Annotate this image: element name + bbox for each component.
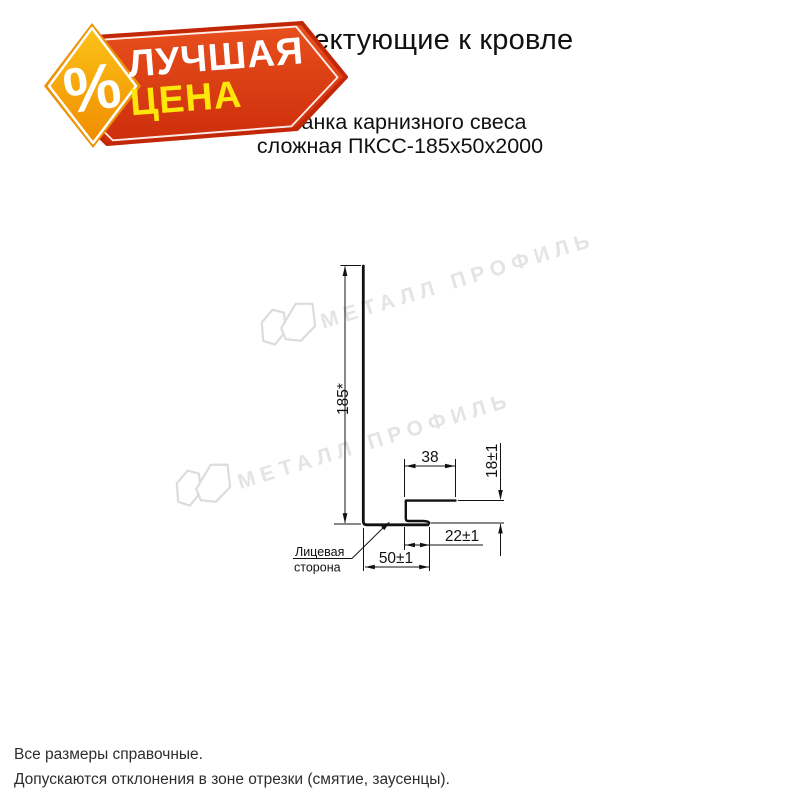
dim-label-185: 185* [335,383,352,415]
watermark-text: МЕТАЛЛ ПРОФИЛЬ [235,388,515,494]
footer-note-line2: Допускаются отклонения в зоне отрезки (с… [14,768,450,793]
dim-label-38: 38 [421,449,438,466]
footer-note-line1: Все размеры справочные. [14,743,450,768]
badge-word-bottom: ЦЕНА [129,74,244,125]
dim-label-50: 50±1 [379,550,413,567]
face-label-line1: Лицевая [295,545,344,559]
face-label-line2: сторона [294,561,341,575]
dimension-38: 38 [405,449,456,497]
watermark-text: МЕТАЛЛ ПРОФИЛЬ [318,228,598,334]
footer-notes: Все размеры справочные. Допускаются откл… [14,743,450,792]
dim-label-18: 18±1 [484,444,501,478]
dimension-50: 50±1 [364,528,430,571]
metal-profil-logo-icon [255,298,322,351]
best-price-badge: % ЛУЧШАЯ ЦЕНА [15,15,360,155]
metal-profil-logo-icon [170,459,237,512]
watermark-upper: МЕТАЛЛ ПРОФИЛЬ [255,214,598,352]
dimension-22: 22±1 [405,527,484,571]
dim-label-22: 22±1 [445,528,479,545]
percent-icon: % [59,48,125,127]
